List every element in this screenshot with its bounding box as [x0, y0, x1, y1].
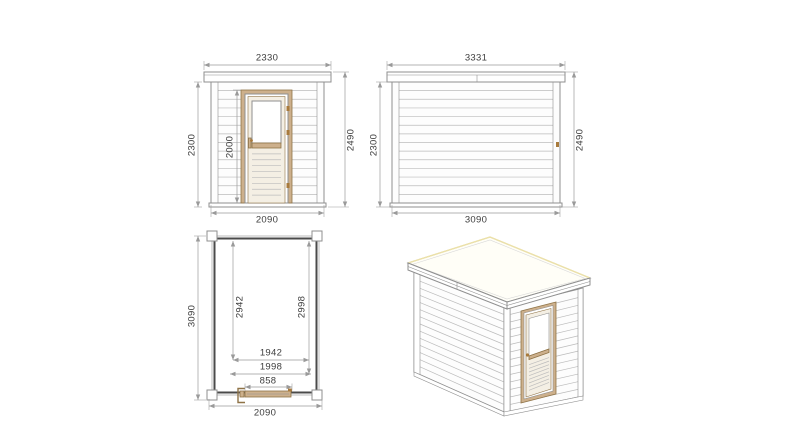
- plan-interior-width2-dim: 1998: [260, 362, 282, 372]
- side-elevation: [376, 61, 578, 217]
- plan-door: [238, 389, 292, 403]
- side-base: [390, 203, 562, 207]
- front-door-hinge-top: [287, 106, 290, 111]
- front-door-height-dim: 2000: [225, 136, 235, 158]
- iso-corner-post: [578, 288, 583, 398]
- plan-corner-post: [207, 390, 217, 400]
- side-door-handle: [556, 142, 559, 147]
- side-base-width-dim: 3090: [465, 215, 487, 225]
- front-door-hinge-bottom: [287, 183, 290, 188]
- iso-door-window: [529, 313, 549, 356]
- side-total-height-dim: 2490: [575, 129, 585, 151]
- front-door: [241, 90, 292, 203]
- plan-door-latch: [288, 389, 292, 392]
- front-roof-width-dim: 2330: [256, 53, 278, 63]
- front-wall-height-dim: 2300: [187, 134, 197, 156]
- iso-corner-post: [414, 271, 420, 375]
- plan-door-width-dim: 858: [260, 376, 277, 386]
- side-roof: [387, 72, 565, 82]
- plan-corner-post: [207, 231, 217, 241]
- front-total-height-dim: 2490: [346, 129, 356, 151]
- front-elevation: [194, 61, 349, 217]
- plan-corner-post: [312, 390, 322, 400]
- side-wall-height-dim: 2300: [369, 134, 379, 156]
- iso-door-handle: [526, 353, 529, 356]
- plan-interior-right-dim: 2998: [297, 296, 307, 318]
- front-base-width-dim: 2090: [256, 215, 278, 225]
- iso-door: [521, 302, 556, 403]
- front-base: [209, 203, 326, 207]
- plan-corner-post: [312, 231, 322, 241]
- plan-dimension-lines: [194, 236, 322, 410]
- isometric-view: [408, 237, 590, 416]
- drawing-artwork: [0, 0, 794, 446]
- iso-corner-post: [504, 306, 510, 412]
- front-door-window: [252, 101, 281, 143]
- plan-interior-width-dim: 1942: [260, 348, 282, 358]
- plan-interior-left-dim: 2942: [235, 296, 245, 318]
- plan-depth-dim: 3090: [187, 305, 197, 327]
- side-roof-width-dim: 3331: [465, 53, 487, 63]
- plan-width-dim: 2090: [254, 408, 276, 418]
- front-door-hinge-middle: [287, 130, 290, 135]
- side-wall: [392, 82, 560, 203]
- floor-plan: [194, 231, 322, 410]
- technical-drawing-sheet: 2330 2300 2000 2490 2090 3331 2300 2490 …: [0, 0, 794, 446]
- front-roof: [204, 72, 331, 82]
